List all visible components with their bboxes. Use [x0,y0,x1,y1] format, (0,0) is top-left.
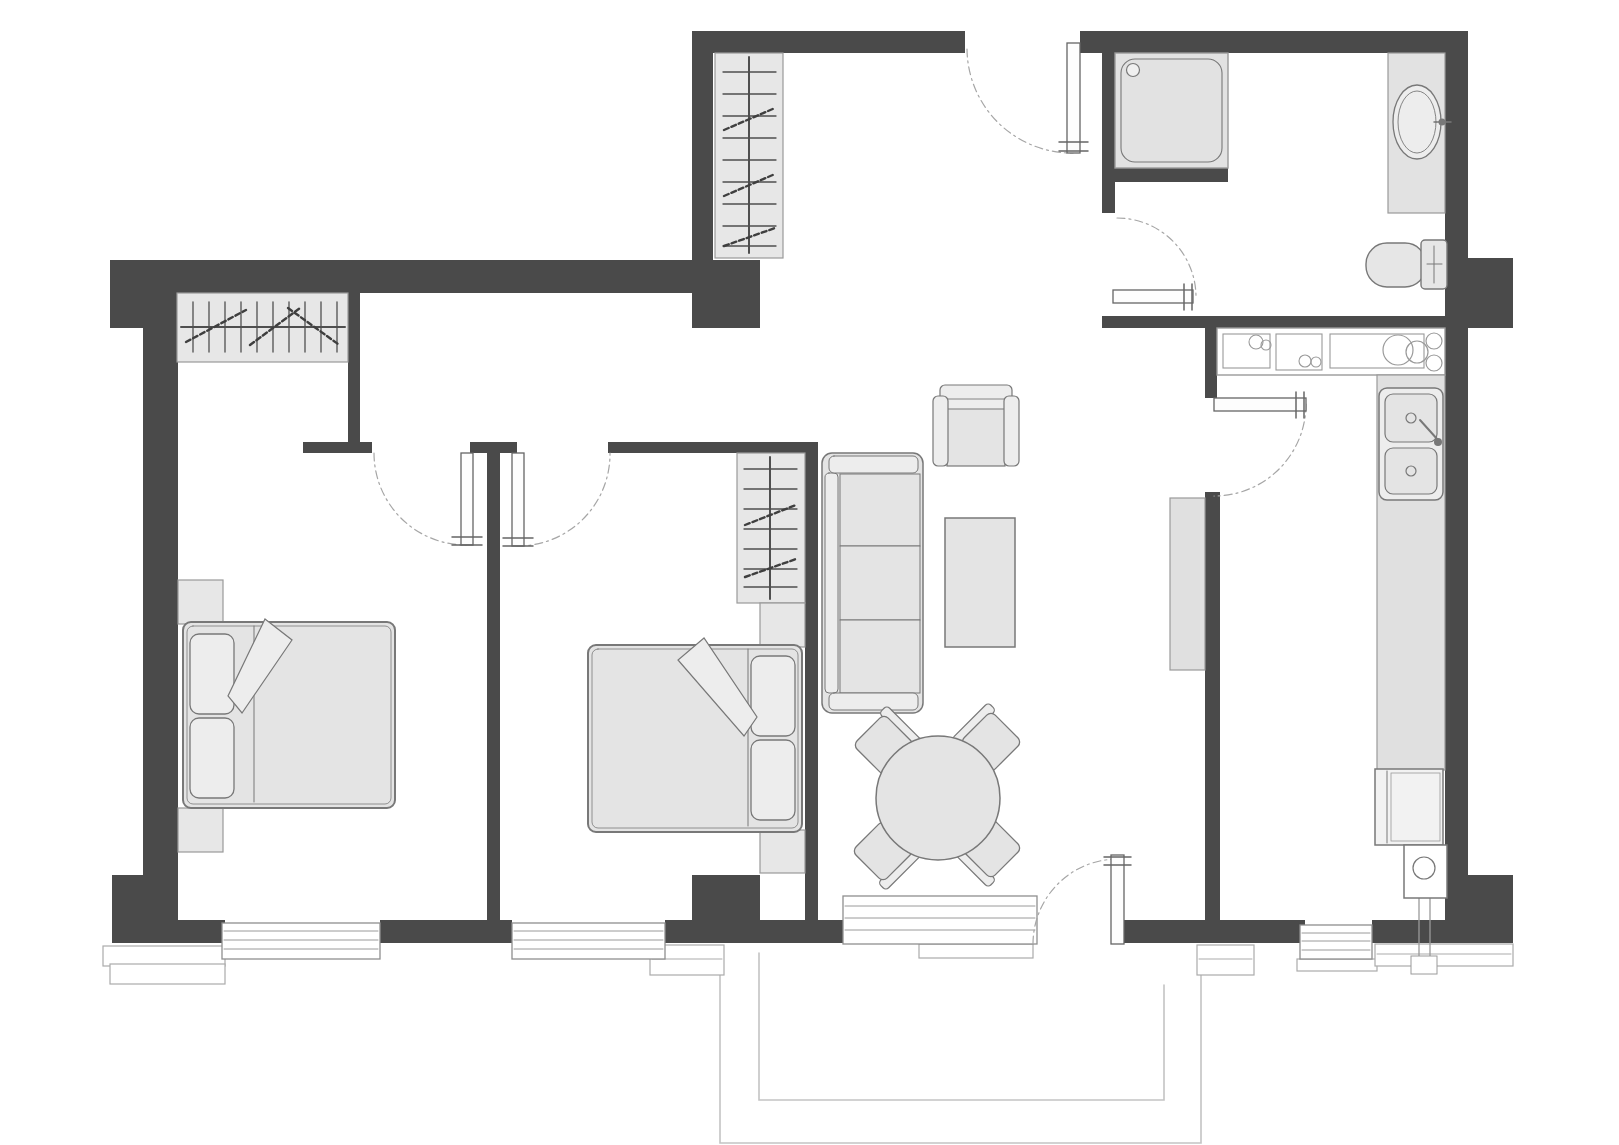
sofa-backrest [825,473,838,693]
bedroom1-door-arc [374,453,466,545]
closet-hall [715,53,783,258]
window-kitchen [1300,925,1372,959]
sill-left-corner-outer [103,946,225,966]
armchair-back [940,385,1012,409]
wall-bottom-right-b [1372,920,1445,943]
wall-window-pillar [692,875,760,920]
sill-left-corner-inner [110,964,225,984]
nightstand [760,830,805,873]
dining-table [876,736,1000,860]
wall-hall-vertical [692,31,713,261]
armchair-armrest [1004,396,1019,466]
armchair-seat [947,406,1005,466]
wall-bedrooms-divider [487,442,500,920]
washer-drain-box [1411,956,1437,974]
pillow [190,718,234,798]
closet-bedroom2 [737,453,805,603]
sink-bowl [1385,394,1437,442]
shower-drain [1127,64,1140,77]
sink-faucet-head [1434,438,1442,446]
kitchen-door-leaf [1214,398,1306,411]
wall-bathroom-left [1102,53,1115,213]
window-bedroom2 [512,923,665,959]
floor-plan [0,0,1619,1145]
wall-shower-stub [1115,168,1228,182]
wall-kitchen-left-lower [1205,492,1220,922]
wall-corridor-stub-a [303,442,372,453]
closet-bedroom1 [177,293,348,362]
coffee-table [945,518,1015,647]
pillow [751,656,795,736]
dresser [178,808,223,852]
nightstand [760,603,805,647]
wall-corridor-stub-c [608,442,818,453]
wall-left [143,293,178,875]
living-furniture [822,385,1205,891]
kitchen-door-arc [1214,404,1306,496]
sill-right-corner [1375,944,1513,966]
sink-bowl [1385,448,1437,494]
window-living-glazing [843,896,1037,944]
wall-mid-band [1102,316,1445,328]
washing-machine [1404,845,1447,898]
balcony-railing [759,953,1164,1100]
wall-top-left-band [110,260,692,293]
bedroom2-door-arc [517,453,610,546]
wall-bottom-right-corner [1445,875,1513,943]
bedroom2-furniture [588,603,805,873]
wall-top-right-segment [1080,31,1445,53]
bedroom1-door-leaf [461,453,473,545]
balcony-door-arc [1033,859,1118,944]
sill-balcony-door [919,944,1033,958]
oven [1375,769,1443,845]
entrance-door-arc [967,49,1073,153]
wall-bedroom1-right [348,293,360,453]
sill-kitchen-left [1197,945,1254,975]
balcony-floor-edge [720,952,1201,1143]
sofa-seat [840,546,920,620]
sofa-armrest [829,693,918,710]
bedroom1-furniture [178,580,395,852]
wall-bottom-stub-left [178,920,225,943]
tv-cabinet [1170,498,1205,670]
wall-bottom-mid [380,920,512,943]
bedroom2-door-leaf [512,453,524,546]
wall-hall-block [692,260,760,328]
toilet-bowl [1366,243,1426,287]
window-bedroom1 [222,923,380,959]
kitchen-fixtures [1217,328,1447,974]
dresser [178,580,223,624]
pillow [190,634,234,714]
sofa-armrest [829,456,918,473]
basin-faucet-head [1439,119,1446,126]
armchair-armrest [933,396,948,466]
bathroom-door-leaf [1113,290,1193,303]
floor-plan-svg [0,0,1619,1145]
sofa-seat [840,620,920,693]
wall-kitchen-left-upper [1205,316,1217,398]
wall-bottom-left-corner [112,875,178,943]
wall-top-left-segment [692,31,965,53]
balcony-outline [720,952,1201,1143]
balcony-door-leaf [1111,855,1124,944]
wall-right-bump [1468,258,1513,328]
entrance-door-leaf [1067,43,1080,153]
sofa-seat [840,474,920,546]
wall-right [1445,31,1468,875]
wall-bedroom2-living [805,442,818,922]
sill-kitchen-window [1297,959,1377,971]
wall-bottom-right-a [1123,920,1305,943]
pillow [751,740,795,820]
